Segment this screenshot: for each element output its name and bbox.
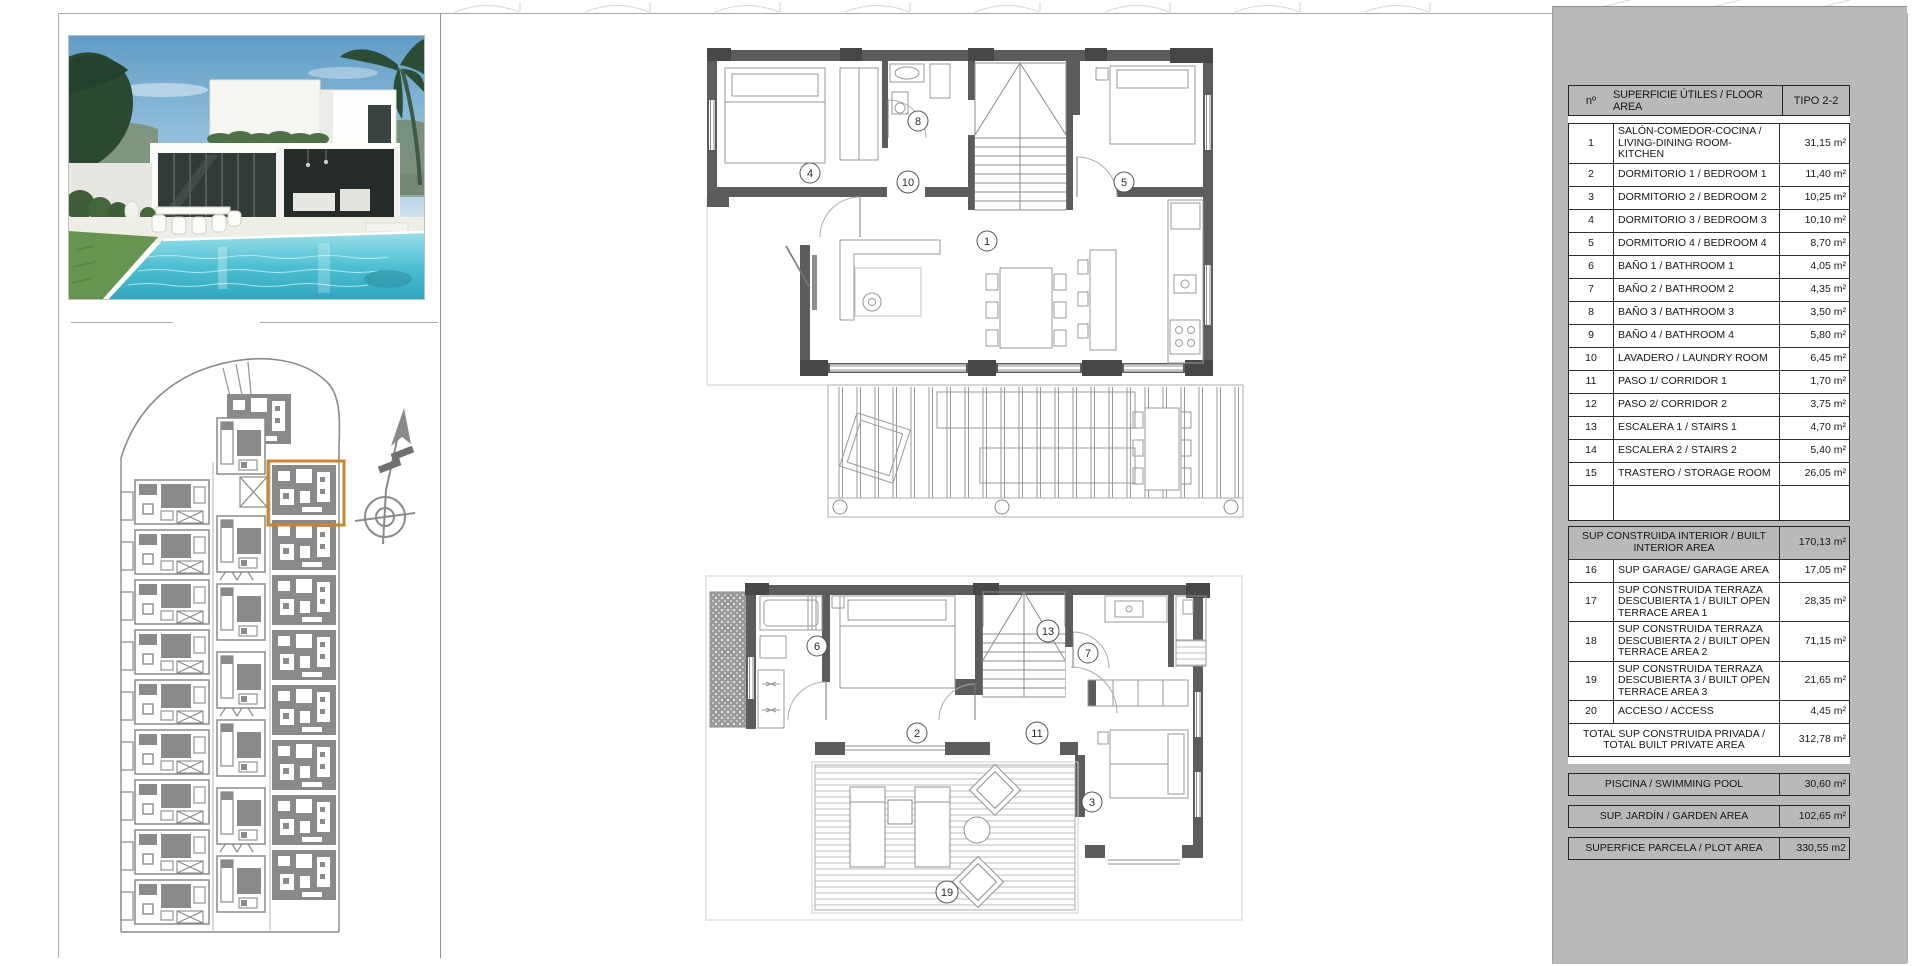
summary-table: SUPERFICE PARCELA / PLOT AREA330,55 m2 bbox=[1568, 837, 1850, 860]
row-value: 4,35 m² bbox=[1779, 279, 1849, 301]
row-value: 5,40 m² bbox=[1779, 440, 1849, 462]
storage-terrace bbox=[828, 385, 1243, 517]
table-row: 11PASO 1/ CORRIDOR 11,70 m² bbox=[1569, 370, 1849, 393]
row-value: 1,70 m² bbox=[1779, 371, 1849, 393]
upper-floor-plan: 4 8 10 5 1 bbox=[690, 40, 1250, 535]
row-label: SALÓN-COMEDOR-COCINA / LIVING-DINING ROO… bbox=[1614, 124, 1779, 163]
row-label: PISCINA / SWIMMING POOL bbox=[1569, 774, 1779, 795]
svg-text:13: 13 bbox=[1042, 626, 1054, 638]
row-value: 3,75 m² bbox=[1779, 394, 1849, 416]
row-value: 28,35 m² bbox=[1779, 583, 1849, 622]
table-row: 9BAÑO 4 / BATHROOM 45,80 m² bbox=[1569, 324, 1849, 347]
table-gap bbox=[1568, 757, 1850, 764]
row-value: 4,70 m² bbox=[1779, 417, 1849, 439]
row-label: ACCESO / ACCESS bbox=[1614, 701, 1779, 723]
row-value: 8,70 m² bbox=[1779, 233, 1849, 255]
row-number: 20 bbox=[1569, 701, 1614, 723]
row-value: 6,45 m² bbox=[1779, 348, 1849, 370]
row-value: 312,78 m² bbox=[1779, 724, 1849, 756]
row-label: BAÑO 2 / BATHROOM 2 bbox=[1614, 279, 1779, 301]
area-table-main-rows: 1SALÓN-COMEDOR-COCINA / LIVING-DINING RO… bbox=[1568, 123, 1850, 521]
row-label: DORMITORIO 1 / BEDROOM 1 bbox=[1614, 164, 1779, 186]
row-label: TOTAL SUP CONSTRUIDA PRIVADA / TOTAL BUI… bbox=[1569, 724, 1779, 756]
row-value: 71,15 m² bbox=[1779, 622, 1849, 661]
row-value: 330,55 m2 bbox=[1779, 838, 1849, 859]
header-type-col: TIPO 2-2 bbox=[1782, 86, 1849, 115]
table-gap bbox=[1568, 116, 1850, 123]
row-label: PASO 2/ CORRIDOR 2 bbox=[1614, 394, 1779, 416]
row-label: SUP CONSTRUIDA TERRAZA DESCUBIERTA 1 / B… bbox=[1614, 583, 1779, 622]
svg-text:1: 1 bbox=[984, 236, 990, 248]
row-label: TRASTERO / STORAGE ROOM bbox=[1614, 463, 1779, 485]
villa-photo bbox=[68, 35, 425, 300]
row-label: PASO 1/ CORRIDOR 1 bbox=[1614, 371, 1779, 393]
svg-text:6: 6 bbox=[814, 641, 820, 653]
table-row: 1SALÓN-COMEDOR-COCINA / LIVING-DINING RO… bbox=[1569, 124, 1849, 163]
table-row bbox=[1569, 485, 1849, 520]
row-value: 102,65 m² bbox=[1779, 806, 1849, 827]
row-number: 17 bbox=[1569, 583, 1614, 622]
row-label: ESCALERA 2 / STAIRS 2 bbox=[1614, 440, 1779, 462]
table-row: 12PASO 2/ CORRIDOR 23,75 m² bbox=[1569, 393, 1849, 416]
row-label: SUPERFICE PARCELA / PLOT AREA bbox=[1569, 838, 1779, 859]
stairs-lower bbox=[983, 592, 1065, 697]
area-table-header: nº SUPERFICIE ÚTILES / FLOOR AREA TIPO 2… bbox=[1568, 85, 1850, 116]
row-number: 15 bbox=[1569, 463, 1614, 485]
row-number: 6 bbox=[1569, 256, 1614, 278]
room-labels-upper: 4 8 10 5 1 bbox=[800, 111, 1134, 251]
row-number bbox=[1569, 486, 1614, 520]
row-number: 1 bbox=[1569, 124, 1614, 163]
row-number: 8 bbox=[1569, 302, 1614, 324]
row-label: LAVADERO / LAUNDRY ROOM bbox=[1614, 348, 1779, 370]
row-value: 31,15 m² bbox=[1779, 124, 1849, 163]
table-row: SUP CONSTRUIDA INTERIOR / BUILT INTERIOR… bbox=[1569, 527, 1849, 559]
table-row: 5DORMITORIO 4 / BEDROOM 48,70 m² bbox=[1569, 232, 1849, 255]
svg-text:19: 19 bbox=[941, 887, 953, 899]
row-value: 5,80 m² bbox=[1779, 325, 1849, 347]
table-row: SUP. JARDÍN / GARDEN AREA102,65 m² bbox=[1569, 806, 1849, 827]
row-label: SUP. JARDÍN / GARDEN AREA bbox=[1569, 806, 1779, 827]
row-label: BAÑO 3 / BATHROOM 3 bbox=[1614, 302, 1779, 324]
row-label: BAÑO 1 / BATHROOM 1 bbox=[1614, 256, 1779, 278]
row-label: DORMITORIO 2 / BEDROOM 2 bbox=[1614, 187, 1779, 209]
row-label: SUP CONSTRUIDA TERRAZA DESCUBIERTA 3 / B… bbox=[1614, 662, 1779, 701]
table-row: 6BAÑO 1 / BATHROOM 14,05 m² bbox=[1569, 255, 1849, 278]
site-units bbox=[121, 418, 336, 924]
table-row: 8BAÑO 3 / BATHROOM 33,50 m² bbox=[1569, 301, 1849, 324]
sheet-left-border bbox=[58, 13, 59, 958]
svg-text:8: 8 bbox=[915, 116, 921, 128]
plan-sheet: { "colors": { "panel_gray": "#b9b9b9", "… bbox=[0, 0, 1920, 966]
row-label: SUP CONSTRUIDA INTERIOR / BUILT INTERIOR… bbox=[1569, 527, 1779, 559]
row-label: DORMITORIO 4 / BEDROOM 4 bbox=[1614, 233, 1779, 255]
area-table-summary-rows: PISCINA / SWIMMING POOL30,60 m²SUP. JARD… bbox=[1568, 773, 1850, 860]
row-value: 26,05 m² bbox=[1779, 463, 1849, 485]
row-number: 11 bbox=[1569, 371, 1614, 393]
row-value: 30,60 m² bbox=[1779, 774, 1849, 795]
row-label: SUP GARAGE/ GARAGE AREA bbox=[1614, 560, 1779, 582]
row-number: 14 bbox=[1569, 440, 1614, 462]
row-value: 10,10 m² bbox=[1779, 210, 1849, 232]
site-plan bbox=[105, 350, 465, 965]
svg-text:7: 7 bbox=[1085, 648, 1091, 660]
table-row: 4DORMITORIO 3 / BEDROOM 310,10 m² bbox=[1569, 209, 1849, 232]
summary-table: SUP. JARDÍN / GARDEN AREA102,65 m² bbox=[1568, 805, 1850, 828]
table-row: SUPERFICE PARCELA / PLOT AREA330,55 m2 bbox=[1569, 838, 1849, 859]
row-number: 9 bbox=[1569, 325, 1614, 347]
table-row: 2DORMITORIO 1 / BEDROOM 111,40 m² bbox=[1569, 163, 1849, 186]
svg-text:10: 10 bbox=[902, 177, 914, 189]
row-number: 3 bbox=[1569, 187, 1614, 209]
svg-text:5: 5 bbox=[1121, 177, 1127, 189]
row-value: 17,05 m² bbox=[1779, 560, 1849, 582]
row-label: DORMITORIO 3 / BEDROOM 3 bbox=[1614, 210, 1779, 232]
row-number: 13 bbox=[1569, 417, 1614, 439]
svg-text:11: 11 bbox=[1031, 728, 1042, 740]
row-number: 18 bbox=[1569, 622, 1614, 661]
row-value: 4,45 m² bbox=[1779, 701, 1849, 723]
row-label: SUP CONSTRUIDA TERRAZA DESCUBIERTA 2 / B… bbox=[1614, 622, 1779, 661]
sheet-right-border bbox=[1907, 13, 1908, 963]
row-number: 19 bbox=[1569, 662, 1614, 701]
row-value bbox=[1779, 486, 1849, 520]
row-label: BAÑO 4 / BATHROOM 4 bbox=[1614, 325, 1779, 347]
stairs-upper bbox=[975, 63, 1066, 210]
row-number: 16 bbox=[1569, 560, 1614, 582]
north-arrow-icon bbox=[355, 408, 415, 544]
row-value: 170,13 m² bbox=[1779, 527, 1849, 559]
svg-text:4: 4 bbox=[807, 168, 813, 180]
table-row: 3DORMITORIO 2 / BEDROOM 210,25 m² bbox=[1569, 186, 1849, 209]
photo-divider-right bbox=[260, 322, 438, 323]
area-table-built-rows: SUP CONSTRUIDA INTERIOR / BUILT INTERIOR… bbox=[1568, 526, 1850, 758]
row-value: 11,40 m² bbox=[1779, 164, 1849, 186]
table-row: PISCINA / SWIMMING POOL30,60 m² bbox=[1569, 774, 1849, 795]
row-number: 7 bbox=[1569, 279, 1614, 301]
table-header-row: nº SUPERFICIE ÚTILES / FLOOR AREA TIPO 2… bbox=[1569, 86, 1849, 115]
table-row: TOTAL SUP CONSTRUIDA PRIVADA / TOTAL BUI… bbox=[1569, 723, 1849, 756]
lower-floor-plan: 6 2 13 7 11 3 19 bbox=[690, 572, 1250, 942]
photo-divider-left bbox=[71, 322, 173, 323]
row-label bbox=[1614, 486, 1779, 520]
row-number: 12 bbox=[1569, 394, 1614, 416]
row-value: 3,50 m² bbox=[1779, 302, 1849, 324]
table-row: 14ESCALERA 2 / STAIRS 25,40 m² bbox=[1569, 439, 1849, 462]
row-value: 10,25 m² bbox=[1779, 187, 1849, 209]
row-number: 10 bbox=[1569, 348, 1614, 370]
row-value: 21,65 m² bbox=[1779, 662, 1849, 701]
table-row: 20ACCESO / ACCESS4,45 m² bbox=[1569, 700, 1849, 723]
row-number: 5 bbox=[1569, 233, 1614, 255]
row-number: 4 bbox=[1569, 210, 1614, 232]
header-number-col: nº bbox=[1569, 86, 1613, 115]
table-row: 19SUP CONSTRUIDA TERRAZA DESCUBIERTA 3 /… bbox=[1569, 661, 1849, 701]
area-table: nº SUPERFICIE ÚTILES / FLOOR AREA TIPO 2… bbox=[1568, 85, 1850, 860]
row-value: 4,05 m² bbox=[1779, 256, 1849, 278]
row-label: ESCALERA 1 / STAIRS 1 bbox=[1614, 417, 1779, 439]
table-row: 10LAVADERO / LAUNDRY ROOM6,45 m² bbox=[1569, 347, 1849, 370]
table-row: 13ESCALERA 1 / STAIRS 14,70 m² bbox=[1569, 416, 1849, 439]
row-number: 2 bbox=[1569, 164, 1614, 186]
header-label-col: SUPERFICIE ÚTILES / FLOOR AREA bbox=[1613, 86, 1782, 115]
table-row: 7BAÑO 2 / BATHROOM 24,35 m² bbox=[1569, 278, 1849, 301]
areas-panel: nº SUPERFICIE ÚTILES / FLOOR AREA TIPO 2… bbox=[1552, 6, 1907, 964]
table-row: 17SUP CONSTRUIDA TERRAZA DESCUBIERTA 1 /… bbox=[1569, 582, 1849, 622]
table-row: 16SUP GARAGE/ GARAGE AREA17,05 m² bbox=[1569, 559, 1849, 582]
svg-text:3: 3 bbox=[1089, 797, 1095, 809]
summary-table: PISCINA / SWIMMING POOL30,60 m² bbox=[1568, 773, 1850, 796]
table-row: 15TRASTERO / STORAGE ROOM26,05 m² bbox=[1569, 462, 1849, 485]
table-row: 18SUP CONSTRUIDA TERRAZA DESCUBIERTA 2 /… bbox=[1569, 621, 1849, 661]
svg-text:2: 2 bbox=[914, 728, 920, 740]
